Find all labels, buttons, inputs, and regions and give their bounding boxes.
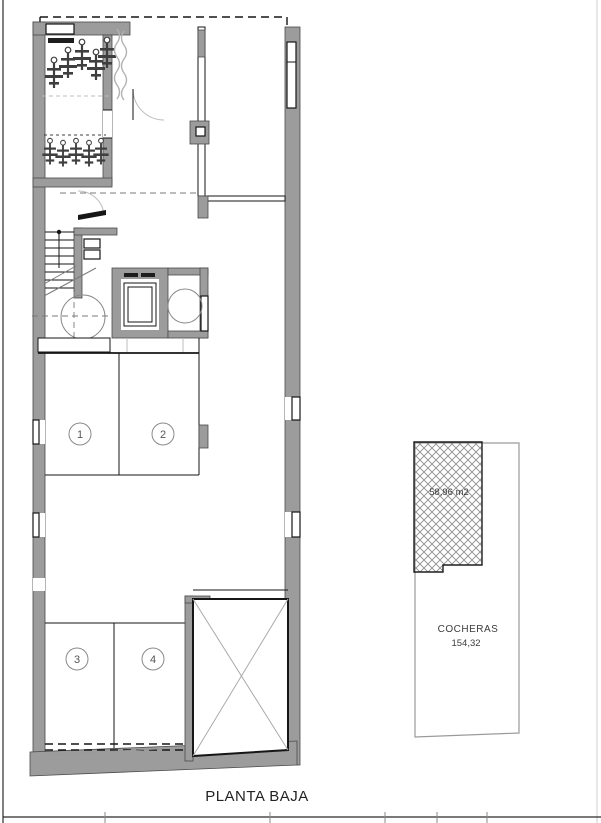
machinery-symbols-lower bbox=[42, 138, 108, 166]
cocheras-name-label: COCHERAS bbox=[438, 624, 499, 635]
cocheras-area-label: 154,32 bbox=[451, 638, 480, 649]
service-room-window bbox=[201, 296, 208, 331]
parking-number-4: 4 bbox=[150, 654, 156, 666]
left-wall-notch-3 bbox=[33, 578, 45, 591]
top-wall-vent bbox=[48, 38, 74, 43]
door-swing-arc-top bbox=[133, 89, 164, 120]
stair-wall-vertical bbox=[74, 228, 82, 298]
hatched-area-label: 58,96 m2 bbox=[429, 487, 469, 498]
right-wall-notch-2-frame bbox=[292, 512, 300, 537]
meter-box-2 bbox=[84, 250, 100, 259]
turning-circle-left bbox=[61, 295, 105, 339]
interior-partitions bbox=[60, 27, 285, 218]
corridor-lines bbox=[127, 338, 183, 353]
parking-zone-upper: 1 2 bbox=[38, 338, 208, 475]
stair-rail-post bbox=[57, 230, 61, 234]
right-wall-notch-1-frame bbox=[292, 397, 300, 420]
partition-column-core bbox=[196, 127, 205, 136]
wall-left bbox=[33, 22, 45, 755]
left-wall-notch-1-frame bbox=[33, 420, 39, 444]
parking-space-4: 4 bbox=[142, 648, 164, 670]
left-wall-notch-2-frame bbox=[33, 513, 39, 537]
staircase bbox=[32, 191, 122, 352]
parking-space-1: 1 bbox=[69, 423, 91, 445]
top-wall-window bbox=[46, 24, 74, 34]
parking-number-2: 2 bbox=[160, 429, 166, 441]
ramp-left-wall bbox=[185, 596, 193, 761]
partition-horizontal bbox=[205, 196, 285, 201]
stall-pilaster bbox=[199, 425, 208, 448]
door-leaf-stair bbox=[78, 210, 106, 220]
stair-landing-box bbox=[38, 338, 110, 352]
turning-circle-right bbox=[168, 289, 202, 323]
elevator-door-left bbox=[124, 273, 138, 277]
parking-space-2: 2 bbox=[152, 423, 174, 445]
floor-plan-svg: 1 2 3 4 58,96 m2 COCHERAS bbox=[0, 0, 601, 823]
elevator-door-right bbox=[141, 273, 155, 277]
parking-space-3: 3 bbox=[66, 648, 88, 670]
partition-junction-pier bbox=[198, 196, 208, 218]
plan-title: PLANTA BAJA bbox=[205, 788, 309, 805]
drawing-sheet: 1 2 3 4 58,96 m2 COCHERAS bbox=[0, 0, 601, 823]
stair-wall-horizontal bbox=[74, 228, 117, 235]
elevator bbox=[112, 268, 168, 338]
ramp bbox=[185, 590, 288, 761]
hatched-area bbox=[414, 442, 482, 572]
service-room-bottom-wall bbox=[168, 331, 208, 338]
machinery-room-door-gap bbox=[103, 110, 112, 138]
service-room bbox=[168, 268, 208, 338]
machinery-room bbox=[33, 35, 116, 187]
meter-box-1 bbox=[84, 239, 100, 248]
parking-zone-lower: 3 4 bbox=[45, 623, 193, 755]
stair-break-lines bbox=[44, 266, 96, 296]
parking-number-1: 1 bbox=[77, 429, 83, 441]
greenery-strip bbox=[115, 29, 127, 100]
cocheras-plot: 58,96 m2 COCHERAS 154,32 bbox=[414, 442, 519, 737]
partition-vertical-cap bbox=[198, 30, 205, 57]
machinery-room-bottom-wall bbox=[33, 178, 112, 187]
parking-number-3: 3 bbox=[74, 654, 80, 666]
right-wall-window bbox=[287, 42, 296, 108]
